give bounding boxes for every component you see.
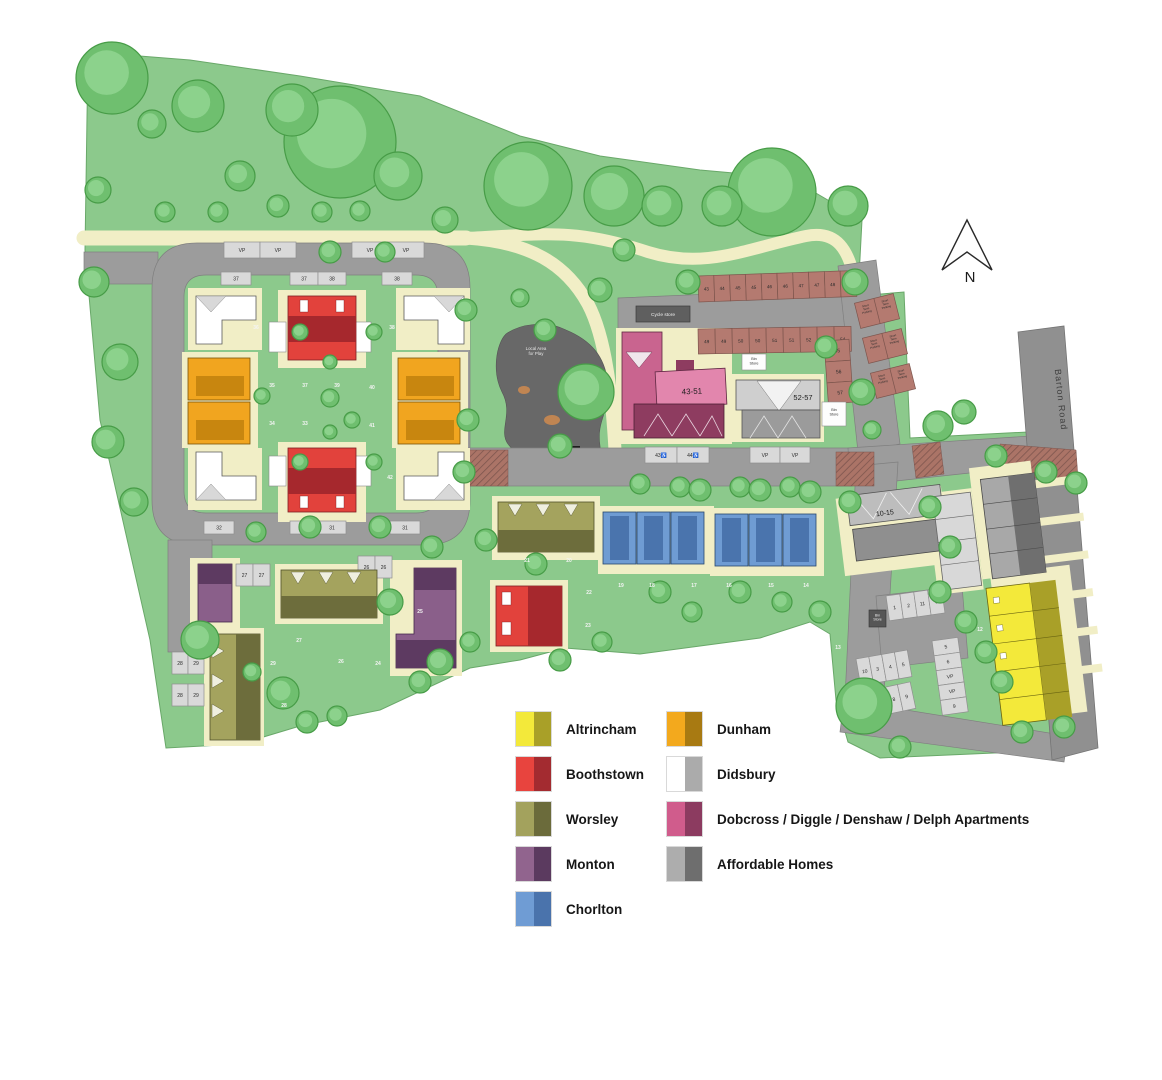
tree-icon <box>267 195 289 217</box>
parking-row: 2829 <box>172 684 204 706</box>
tree-icon <box>319 241 341 263</box>
tree-icon <box>350 201 370 221</box>
legend-label: Dobcross / Diggle / Denshaw / Delph Apar… <box>717 812 1029 827</box>
tree-icon <box>839 491 861 513</box>
tree-icon <box>549 649 571 671</box>
door-mark <box>336 496 344 508</box>
door-mark <box>997 625 1004 632</box>
roof-band <box>414 568 456 590</box>
svg-text:VP: VP <box>367 248 374 254</box>
tree-icon <box>312 202 332 222</box>
legend-item-dobcross-apartments: Dobcross / Diggle / Denshaw / Delph Apar… <box>667 802 1029 836</box>
tree-icon <box>1035 461 1057 483</box>
svg-text:45: 45 <box>735 285 741 290</box>
tree-icon <box>427 649 453 675</box>
tree-icon <box>327 706 347 726</box>
north-arrow: N <box>942 220 992 286</box>
plot-number: 29 <box>270 661 276 667</box>
plot-number: 36 <box>253 325 259 331</box>
tree-icon <box>323 355 337 369</box>
tree-icon <box>375 242 395 262</box>
tree-icon <box>254 388 270 404</box>
tree-icon <box>955 611 977 633</box>
tree-icon <box>92 426 124 458</box>
parking-row: VPVP <box>224 242 296 258</box>
parking-row: 2727 <box>236 564 270 586</box>
legend: Altrincham Boothstown Worsley Monton Cho… <box>516 712 1029 937</box>
tree-icon <box>842 269 868 295</box>
tree-icon <box>815 336 837 358</box>
svg-text:27: 27 <box>259 573 265 579</box>
tree-icon <box>630 474 650 494</box>
tree-icon <box>863 421 881 439</box>
legend-item-worsley: Worsley <box>516 802 667 836</box>
cycle-store-label: Cycle store <box>651 312 675 318</box>
tree-icon <box>729 581 751 603</box>
parking-row: 37 <box>221 272 251 285</box>
svg-text:VP: VP <box>792 453 799 459</box>
apartments-52-57-label: 52-57 <box>793 393 812 402</box>
parking-row: 43♿44♿ <box>645 447 709 463</box>
legend-column-2: Dunham Didsbury Dobcross / Diggle / Dens… <box>667 712 1029 937</box>
plot-number: 24 <box>375 661 381 667</box>
legend-label: Didsbury <box>717 767 776 782</box>
legend-label: Dunham <box>717 722 771 737</box>
worsley-swatch <box>516 802 551 836</box>
svg-text:44: 44 <box>720 286 726 291</box>
tree-icon <box>475 529 497 551</box>
svg-text:47: 47 <box>798 283 804 288</box>
tree-icon <box>1053 716 1075 738</box>
legend-item-altrincham: Altrincham <box>516 712 667 746</box>
tree-icon <box>952 400 976 424</box>
legend-label: Altrincham <box>566 722 637 737</box>
plot-number: 37 <box>302 383 308 389</box>
tree-icon <box>728 148 816 236</box>
north-label: N <box>965 269 976 286</box>
tree-icon <box>780 477 800 497</box>
svg-text:31: 31 <box>402 525 408 531</box>
svg-text:37: 37 <box>301 276 307 282</box>
tree-icon <box>292 324 308 340</box>
tree-icon <box>584 166 644 226</box>
legend-label: Worsley <box>566 812 618 827</box>
tree-icon <box>929 581 951 603</box>
legend-item-chorlton: Chorlton <box>516 892 667 926</box>
tree-icon <box>366 454 382 470</box>
svg-text:28: 28 <box>177 661 183 667</box>
dobcross-swatch <box>667 802 702 836</box>
door-mark <box>300 300 308 312</box>
tree-icon <box>246 522 266 542</box>
tree-icon <box>985 445 1007 467</box>
svg-text:38: 38 <box>329 276 335 282</box>
apartments-43-51-label: 43-51 <box>681 386 702 396</box>
plot-number: 22 <box>586 590 592 596</box>
plot-number: 20 <box>566 558 572 564</box>
parking-row: 32 <box>204 521 234 534</box>
tree-icon <box>455 299 477 321</box>
plot-number: 15 <box>768 583 774 589</box>
svg-text:43♿: 43♿ <box>655 452 667 459</box>
tree-icon <box>1065 472 1087 494</box>
legend-item-affordable-homes: Affordable Homes <box>667 847 1029 881</box>
tree-icon <box>484 142 572 230</box>
roof-band <box>498 530 594 552</box>
tree-icon <box>689 479 711 501</box>
boothstown-swatch <box>516 757 551 791</box>
svg-text:46: 46 <box>783 284 789 289</box>
svg-text:27: 27 <box>242 573 248 579</box>
plot-number: 35 <box>269 383 275 389</box>
tree-icon <box>369 516 391 538</box>
tree-icon <box>85 177 111 203</box>
plot-number: 27 <box>296 638 302 644</box>
plot-number: 13 <box>835 645 841 651</box>
tree-icon <box>939 536 961 558</box>
parking-row: 3738 <box>290 272 346 285</box>
tree-icon <box>702 186 742 226</box>
svg-text:43: 43 <box>704 286 710 291</box>
tree-icon <box>642 186 682 226</box>
tree-icon <box>299 516 321 538</box>
tree-icon <box>460 632 480 652</box>
roof-band <box>236 634 260 740</box>
svg-text:VP: VP <box>762 453 769 459</box>
tree-icon <box>682 602 702 622</box>
tree-icon <box>799 481 821 503</box>
tree-icon <box>120 488 148 516</box>
svg-text:49: 49 <box>704 339 710 344</box>
tree-icon <box>225 161 255 191</box>
chorlton-swatch <box>516 892 551 926</box>
tree-icon <box>409 671 431 693</box>
tree-icon <box>828 186 868 226</box>
plot-number: 12 <box>977 627 983 633</box>
svg-text:37: 37 <box>233 276 239 282</box>
legend-item-boothstown: Boothstown <box>516 757 667 791</box>
tree-icon <box>772 592 792 612</box>
tree-icon <box>79 267 109 297</box>
tree-icon <box>730 477 750 497</box>
roof-band <box>198 564 232 584</box>
plot-number: 28 <box>281 703 287 709</box>
svg-text:VP: VP <box>239 248 246 254</box>
svg-text:VP: VP <box>275 248 282 254</box>
svg-text:48: 48 <box>830 282 836 287</box>
svg-text:28: 28 <box>177 693 183 699</box>
tree-icon <box>323 425 337 439</box>
svg-text:51: 51 <box>772 338 778 343</box>
tree-icon <box>366 324 382 340</box>
legend-item-didsbury: Didsbury <box>667 757 1029 791</box>
svg-text:50: 50 <box>755 338 761 343</box>
tree-icon <box>181 621 219 659</box>
legend-item-dunham: Dunham <box>667 712 1029 746</box>
tree-icon <box>749 479 771 501</box>
dunham-swatch <box>667 712 702 746</box>
tree-icon <box>155 202 175 222</box>
tree-icon <box>511 289 529 307</box>
tree-icon <box>923 411 953 441</box>
tree-icon <box>457 409 479 431</box>
door-mark <box>336 300 344 312</box>
plot-number: 39 <box>334 383 340 389</box>
plot-number: 23 <box>585 623 591 629</box>
tree-icon <box>374 152 422 200</box>
legend-column-1: Altrincham Boothstown Worsley Monton Cho… <box>516 712 667 937</box>
plot-number: 38 <box>389 325 395 331</box>
svg-text:11: 11 <box>920 601 926 608</box>
tree-icon <box>292 454 308 470</box>
tree-icon <box>344 412 360 428</box>
door-mark <box>993 597 1000 604</box>
legend-label: Monton <box>566 857 615 872</box>
tree-icon <box>670 477 690 497</box>
tree-icon <box>296 711 318 733</box>
tree-icon <box>432 207 458 233</box>
svg-text:56: 56 <box>836 369 842 375</box>
plot-number: 16 <box>726 583 732 589</box>
altrincham-swatch <box>516 712 551 746</box>
plot-number: 40 <box>369 385 375 391</box>
svg-text:44♿: 44♿ <box>687 452 699 459</box>
driveway-bay <box>269 456 286 486</box>
svg-text:46: 46 <box>767 284 773 289</box>
roof-band <box>528 586 562 646</box>
play-surface-patch <box>544 415 560 425</box>
svg-text:45: 45 <box>751 285 757 290</box>
svg-text:47: 47 <box>814 283 820 288</box>
tree-icon <box>453 461 475 483</box>
tree-icon <box>592 632 612 652</box>
plot-number: 25 <box>417 609 423 615</box>
tree-icon <box>525 553 547 575</box>
tree-icon <box>919 496 941 518</box>
legend-label: Affordable Homes <box>717 857 833 872</box>
tree-icon <box>321 389 339 407</box>
svg-text:VP: VP <box>403 248 410 254</box>
tree-icon <box>613 239 635 261</box>
tree-icon <box>975 641 997 663</box>
svg-text:57: 57 <box>837 390 843 396</box>
svg-text:29: 29 <box>193 661 199 667</box>
svg-text:38: 38 <box>394 276 400 282</box>
affordable-swatch <box>667 847 702 881</box>
tree-icon <box>377 589 403 615</box>
tree-icon <box>266 84 318 136</box>
legend-label: Boothstown <box>566 767 644 782</box>
tree-icon <box>548 434 572 458</box>
svg-text:49: 49 <box>721 339 727 344</box>
monton-swatch <box>516 847 551 881</box>
tree-icon <box>421 536 443 558</box>
tree-icon <box>588 278 612 302</box>
plot-number: 42 <box>387 475 393 481</box>
tree-icon <box>676 270 700 294</box>
roof-band <box>281 596 377 618</box>
legend-label: Chorlton <box>566 902 622 917</box>
door-mark <box>300 496 308 508</box>
plot-number: 41 <box>369 423 375 429</box>
svg-text:31: 31 <box>329 525 335 531</box>
plot-number: 18 <box>649 583 655 589</box>
plot-number: 17 <box>691 583 697 589</box>
tree-icon <box>76 42 148 114</box>
plot-number: 19 <box>618 583 624 589</box>
parking-row: 38 <box>382 272 412 285</box>
tree-icon <box>991 671 1013 693</box>
driveway-bay <box>269 322 286 352</box>
didsbury-swatch <box>667 757 702 791</box>
svg-text:50: 50 <box>738 339 744 344</box>
play-surface-patch <box>518 386 530 394</box>
svg-text:26: 26 <box>381 565 387 571</box>
plot-number: 21 <box>524 558 530 564</box>
tree-icon <box>558 364 614 420</box>
building-dobcross-apartments <box>634 404 724 438</box>
tree-icon <box>534 319 556 341</box>
door-mark <box>502 592 511 605</box>
parking-row: 31 <box>390 521 420 534</box>
legend-item-monton: Monton <box>516 847 667 881</box>
site-plan-page: VPVP VPVP 37 3738 38 32 3231 31 2727 262… <box>0 0 1162 1080</box>
svg-text:32: 32 <box>216 525 222 531</box>
tree-icon <box>243 663 261 681</box>
svg-text:51: 51 <box>789 338 795 343</box>
tree-icon <box>849 379 875 405</box>
svg-text:29: 29 <box>193 693 199 699</box>
parking-row: VPVP <box>750 447 810 463</box>
tree-icon <box>809 601 831 623</box>
tree-icon <box>102 344 138 380</box>
tree-icon <box>138 110 166 138</box>
door-mark <box>1000 652 1007 659</box>
tree-icon <box>208 202 228 222</box>
plot-number: 14 <box>803 583 809 589</box>
parking-row: 43444545464647474848 <box>698 270 857 301</box>
svg-text:52: 52 <box>806 337 812 342</box>
plot-number: 34 <box>269 421 275 427</box>
tree-icon <box>172 80 224 132</box>
plot-number: 33 <box>302 421 308 427</box>
plot-number: 26 <box>338 659 344 665</box>
roof-band <box>288 468 356 494</box>
door-mark <box>502 622 511 635</box>
